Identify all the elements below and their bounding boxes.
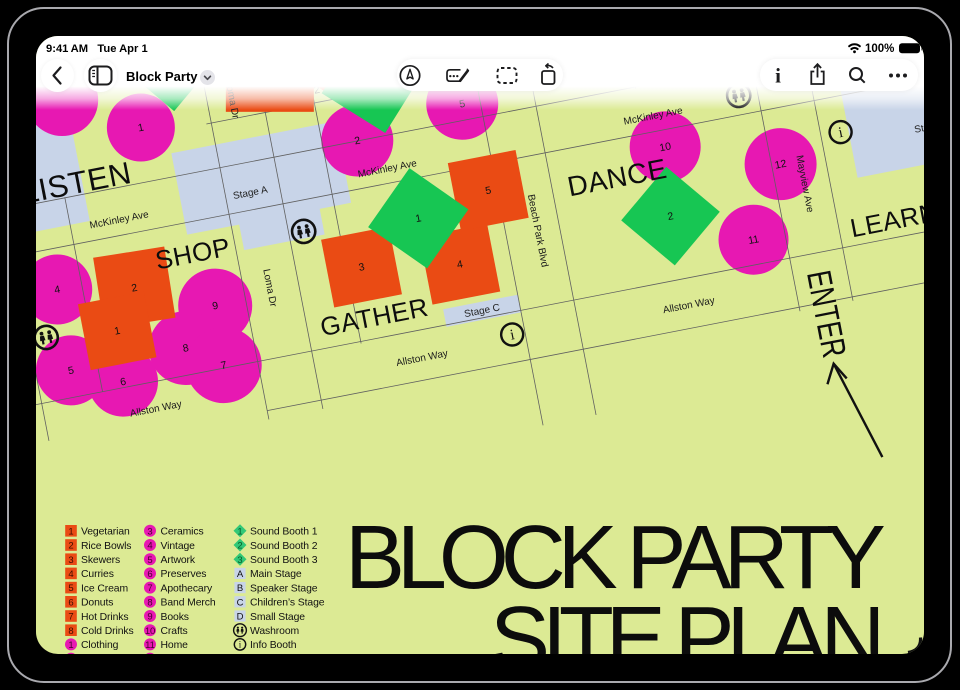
svg-text:6: 6 <box>147 569 152 580</box>
svg-text:Main Stage: Main Stage <box>250 569 302 580</box>
svg-text:Crafts: Crafts <box>161 626 188 637</box>
svg-text:Clothing: Clothing <box>81 640 119 651</box>
svg-text:Allston Way: Allston Way <box>662 295 716 316</box>
svg-text:LEARN: LEARN <box>848 197 924 243</box>
svg-text:Preserves: Preserves <box>161 569 207 580</box>
svg-text:8: 8 <box>68 626 73 637</box>
svg-text:6: 6 <box>68 597 73 608</box>
svg-text:Books: Books <box>161 612 189 623</box>
svg-text:i: i <box>837 125 844 142</box>
svg-text:3: 3 <box>237 555 242 566</box>
svg-text:Speaker Stage: Speaker Stage <box>250 583 318 594</box>
svg-text:11: 11 <box>145 640 155 651</box>
svg-text:Allston Way: Allston Way <box>395 348 449 369</box>
svg-text:Curries: Curries <box>81 569 114 580</box>
svg-text:Hot Drinks: Hot Drinks <box>81 612 129 623</box>
svg-text:Skewers: Skewers <box>81 555 120 566</box>
svg-text:Vegetarian: Vegetarian <box>81 527 130 538</box>
svg-text:McKinley Ave: McKinley Ave <box>89 209 150 231</box>
svg-text:2: 2 <box>68 541 73 552</box>
svg-text:8: 8 <box>147 597 152 608</box>
svg-text:Home: Home <box>161 640 189 651</box>
svg-text:i: i <box>239 640 242 650</box>
svg-text:Beach Park Blvd: Beach Park Blvd <box>525 193 550 268</box>
svg-text:i: i <box>775 63 781 87</box>
svg-text:i: i <box>509 327 516 344</box>
svg-text:9: 9 <box>147 612 152 623</box>
svg-text:Cold Drinks: Cold Drinks <box>81 626 134 637</box>
svg-text:5: 5 <box>68 583 73 594</box>
svg-text:Sound Booth 1: Sound Booth 1 <box>250 527 318 538</box>
svg-text:Band Merch: Band Merch <box>161 598 216 609</box>
svg-text:Artwork: Artwork <box>161 555 196 566</box>
svg-text:Info Booth: Info Booth <box>250 640 297 651</box>
svg-text:Loma Dr: Loma Dr <box>260 268 278 308</box>
svg-text:3: 3 <box>147 526 152 537</box>
svg-text:Sound Booth 2: Sound Booth 2 <box>250 541 318 552</box>
svg-text:Rice Bowls: Rice Bowls <box>81 541 131 552</box>
svg-text:Donuts: Donuts <box>81 598 113 609</box>
svg-text:Sound Booth 3: Sound Booth 3 <box>250 555 318 566</box>
svg-text:Ice Cream: Ice Cream <box>81 583 128 594</box>
svg-text:1: 1 <box>68 640 73 651</box>
svg-text:Vintage: Vintage <box>161 541 196 552</box>
svg-text:Apothecary: Apothecary <box>161 583 213 594</box>
svg-text:SHOP: SHOP <box>153 231 233 275</box>
svg-text:4: 4 <box>68 569 73 580</box>
svg-text:1: 1 <box>68 526 73 537</box>
svg-text:B: B <box>237 583 243 594</box>
svg-text:Children’s Stage: Children’s Stage <box>250 598 325 609</box>
svg-text:Small Stage: Small Stage <box>250 612 305 623</box>
svg-text:Ceramics: Ceramics <box>161 527 204 538</box>
svg-text:12: 12 <box>774 158 788 172</box>
svg-text:7: 7 <box>147 583 152 594</box>
svg-text:1: 1 <box>237 526 242 537</box>
svg-text:10: 10 <box>658 140 672 154</box>
svg-text:5: 5 <box>147 555 152 566</box>
svg-text:A: A <box>237 569 244 580</box>
svg-text:Washroom: Washroom <box>250 626 299 637</box>
svg-text:10: 10 <box>145 626 155 637</box>
svg-text:100%: 100% <box>865 43 894 55</box>
svg-text:C: C <box>237 597 244 608</box>
svg-text:3: 3 <box>68 555 73 566</box>
svg-text:7: 7 <box>68 612 73 623</box>
svg-text:ENTER: ENTER <box>799 267 853 361</box>
svg-text:SITE PLAN: SITE PLAN <box>490 589 878 654</box>
svg-text:4: 4 <box>147 541 152 552</box>
svg-text:2: 2 <box>237 541 242 552</box>
svg-text:D: D <box>237 612 244 623</box>
